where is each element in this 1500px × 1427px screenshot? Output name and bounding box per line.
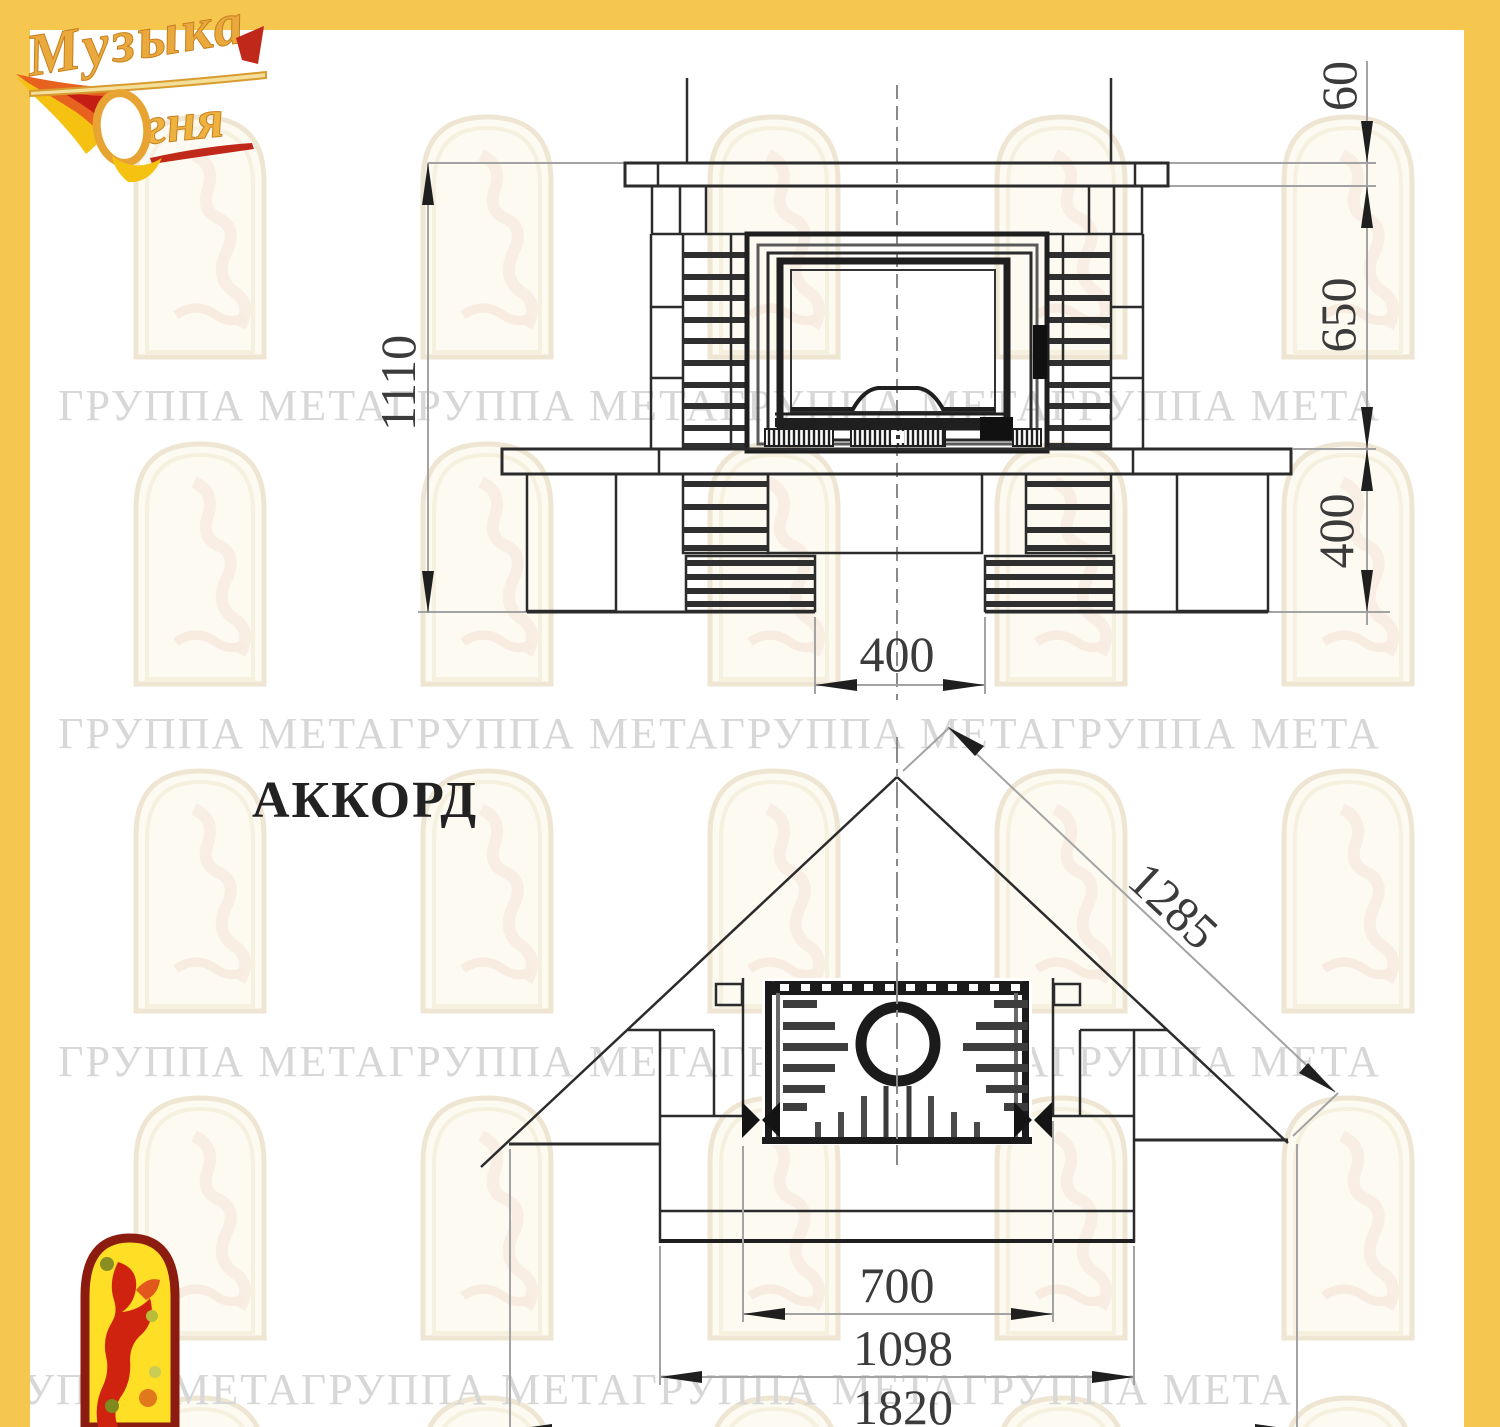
svg-text:АККОРД: АККОРД (252, 772, 478, 829)
svg-text:гня: гня (143, 88, 227, 156)
svg-text:650: 650 (1310, 278, 1366, 353)
svg-text:700: 700 (860, 1257, 935, 1313)
svg-text:400: 400 (1308, 494, 1364, 569)
svg-text:60: 60 (1311, 61, 1367, 111)
svg-text:ГРУППА МЕТАГРУППА МЕТАГРУППА М: ГРУППА МЕТАГРУППА МЕТАГРУППА МЕТАГРУППА … (58, 709, 1381, 758)
svg-text:1110: 1110 (370, 335, 426, 431)
svg-text:1098: 1098 (853, 1320, 953, 1376)
svg-text:1820: 1820 (853, 1379, 953, 1427)
svg-text:400: 400 (860, 626, 935, 682)
